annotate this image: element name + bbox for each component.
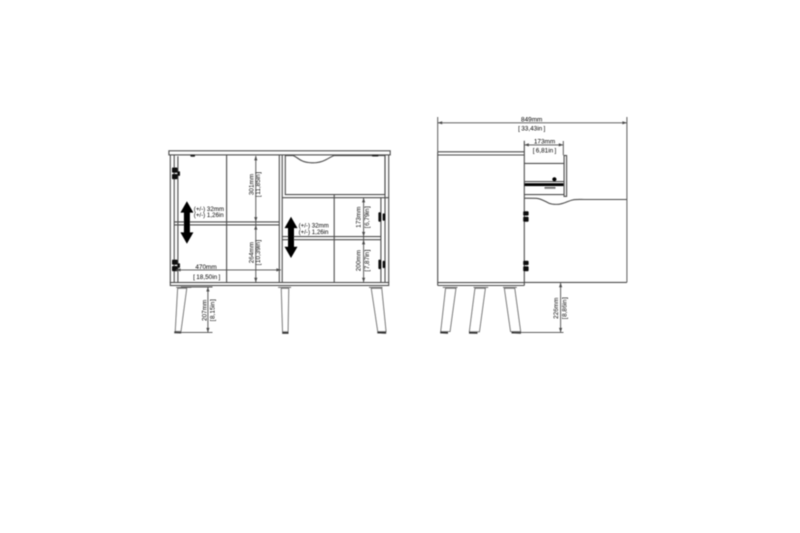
svg-text:[ 18,50in ]: [ 18,50in ] [193,274,220,281]
svg-text:(+/-) 1,26in: (+/-) 1,26in [299,229,329,236]
svg-text:[ 6,79in ]: [ 6,79in ] [364,206,371,228]
svg-text:200mm: 200mm [355,250,362,271]
svg-text:[ 6,81in ]: [ 6,81in ] [533,148,557,155]
svg-text:[ 33,43in ]: [ 33,43in ] [518,126,545,133]
svg-text:173mm: 173mm [355,207,362,228]
svg-text:[ 10,39in ]: [ 10,39in ] [255,240,262,266]
svg-text:[ 8,15in ]: [ 8,15in ] [209,299,216,321]
svg-text:849mm: 849mm [521,116,542,123]
svg-text:470mm: 470mm [195,264,216,271]
svg-text:(+/-) 1,26in: (+/-) 1,26in [194,212,224,219]
svg-text:[ 11,85in ]: [ 11,85in ] [255,172,262,197]
svg-text:226mm: 226mm [553,298,560,319]
svg-text:173mm: 173mm [534,139,555,146]
svg-text:[ 7,87in ]: [ 7,87in ] [364,249,371,271]
svg-text:207mm: 207mm [202,300,209,321]
svg-text:[ 8,86in ]: [ 8,86in ] [562,297,569,319]
